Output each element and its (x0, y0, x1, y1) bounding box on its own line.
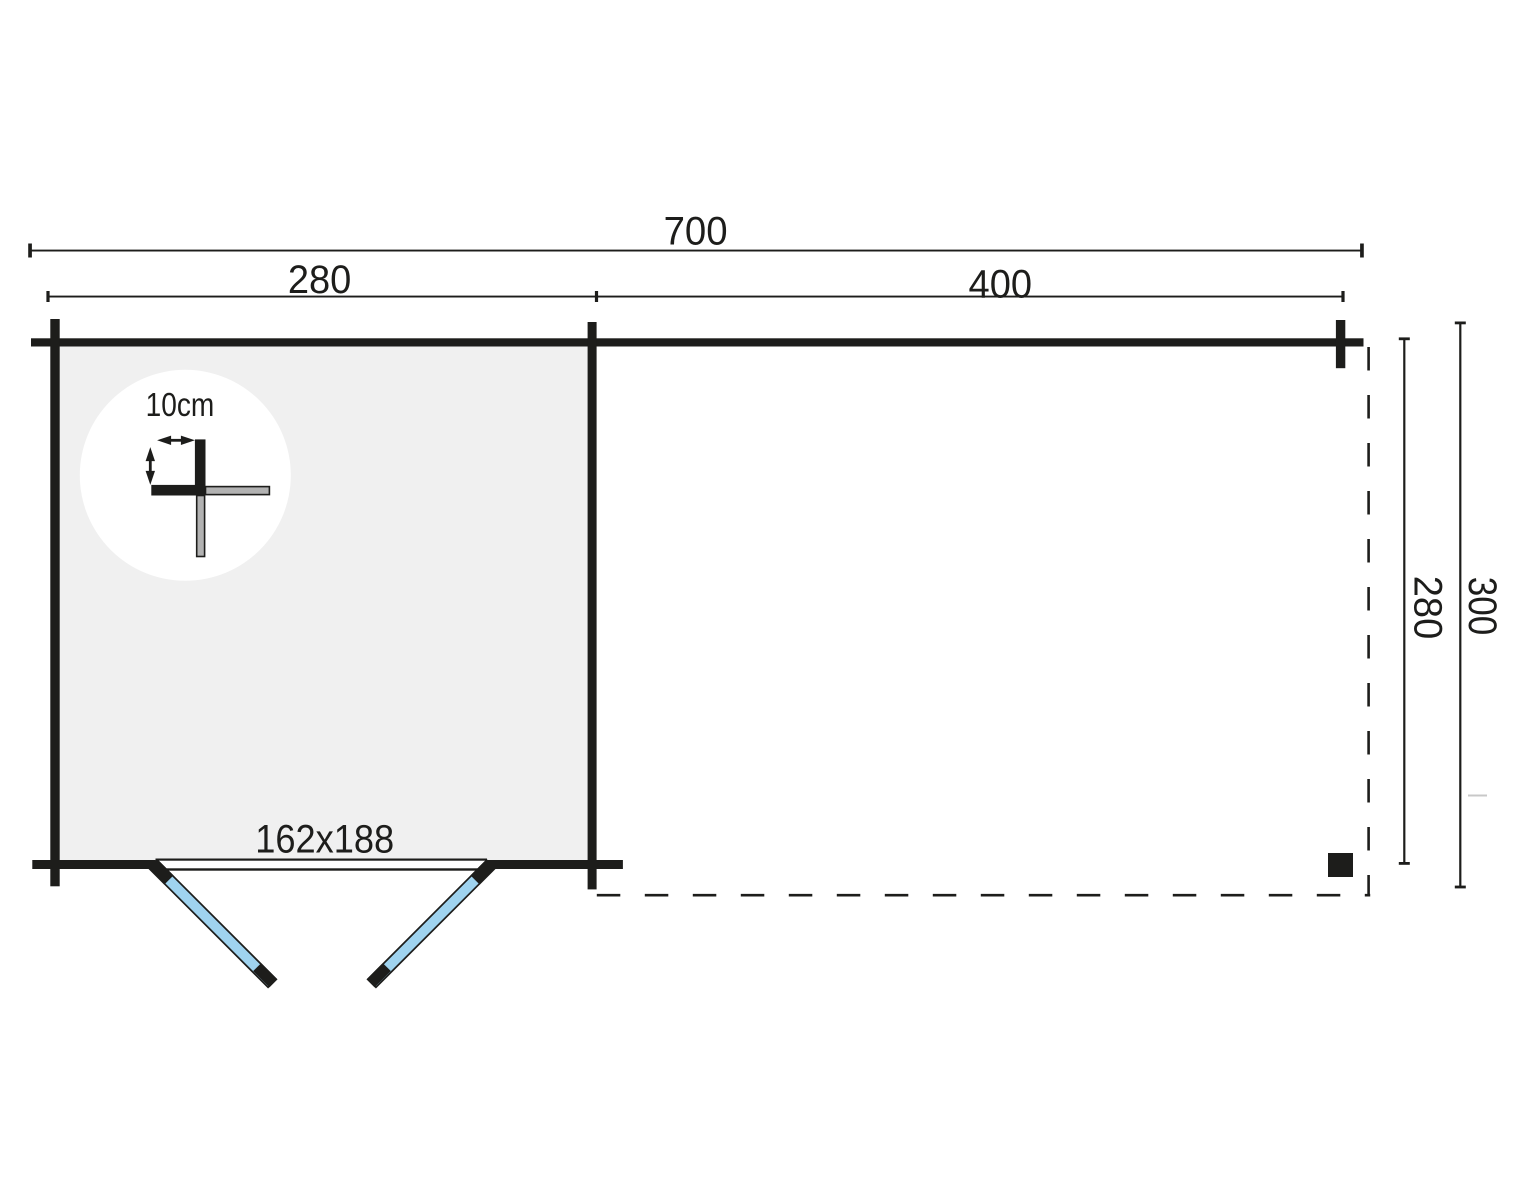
svg-text:400: 400 (969, 263, 1033, 307)
svg-text:280: 280 (288, 258, 352, 302)
svg-text:10cm: 10cm (146, 386, 215, 423)
svg-text:162x188: 162x188 (255, 817, 394, 861)
svg-text:700: 700 (664, 209, 728, 253)
svg-text:300: 300 (1460, 577, 1504, 636)
svg-text:280: 280 (1406, 576, 1450, 640)
